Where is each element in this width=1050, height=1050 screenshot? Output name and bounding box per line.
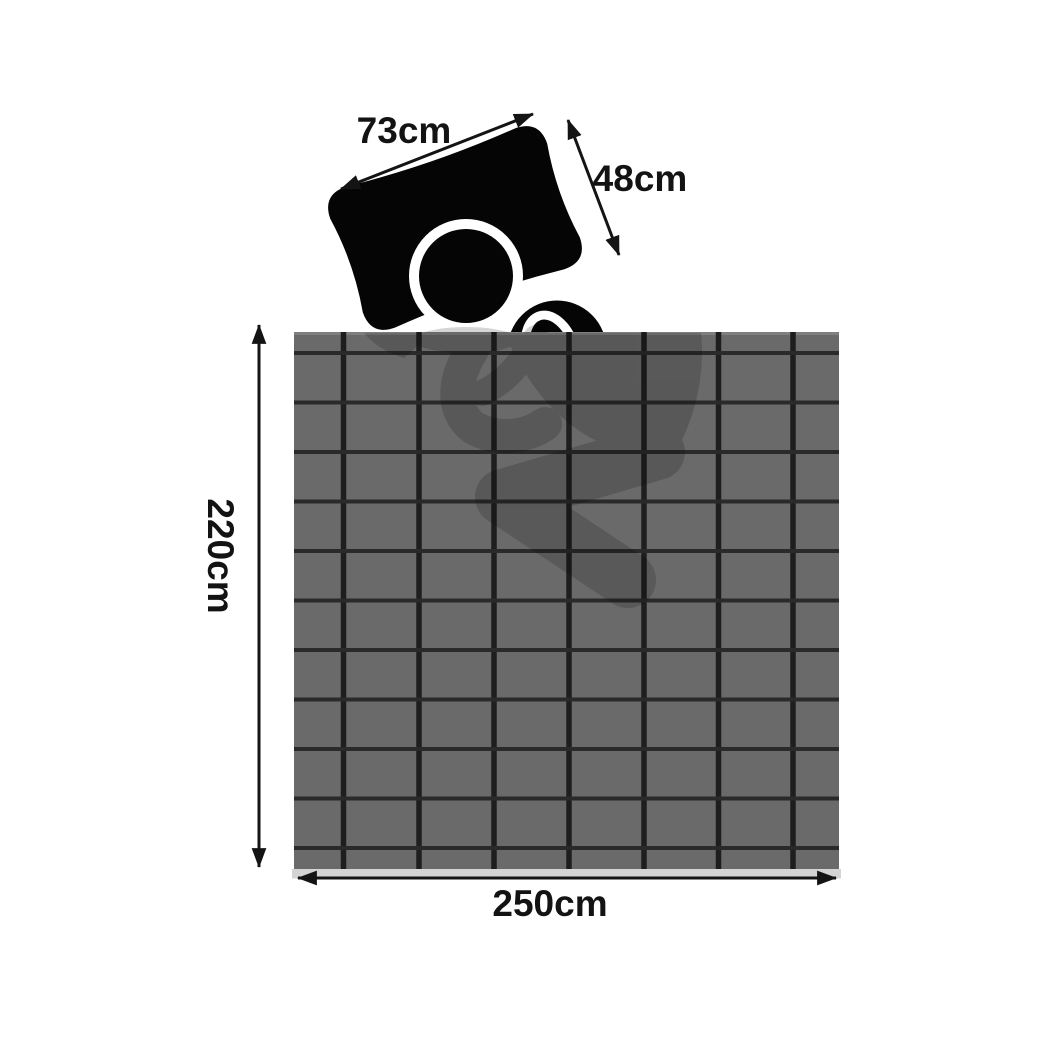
- pillow-height-label: 48cm: [593, 158, 688, 199]
- pillow-width-label: 73cm: [357, 110, 452, 151]
- sleeper-head-icon: [414, 224, 518, 328]
- weighted-blanket-grid-icon: [292, 327, 841, 879]
- silhouette-head-shadow: [414, 327, 518, 353]
- blanket-height-label: 220cm: [200, 498, 241, 613]
- blanket-width-label: 250cm: [492, 883, 607, 924]
- bed-dimensions-illustration: 73cm 48cm 220cm 250cm: [0, 0, 1050, 1050]
- product-dimension-diagram: 73cm 48cm 220cm 250cm: [0, 0, 1050, 1050]
